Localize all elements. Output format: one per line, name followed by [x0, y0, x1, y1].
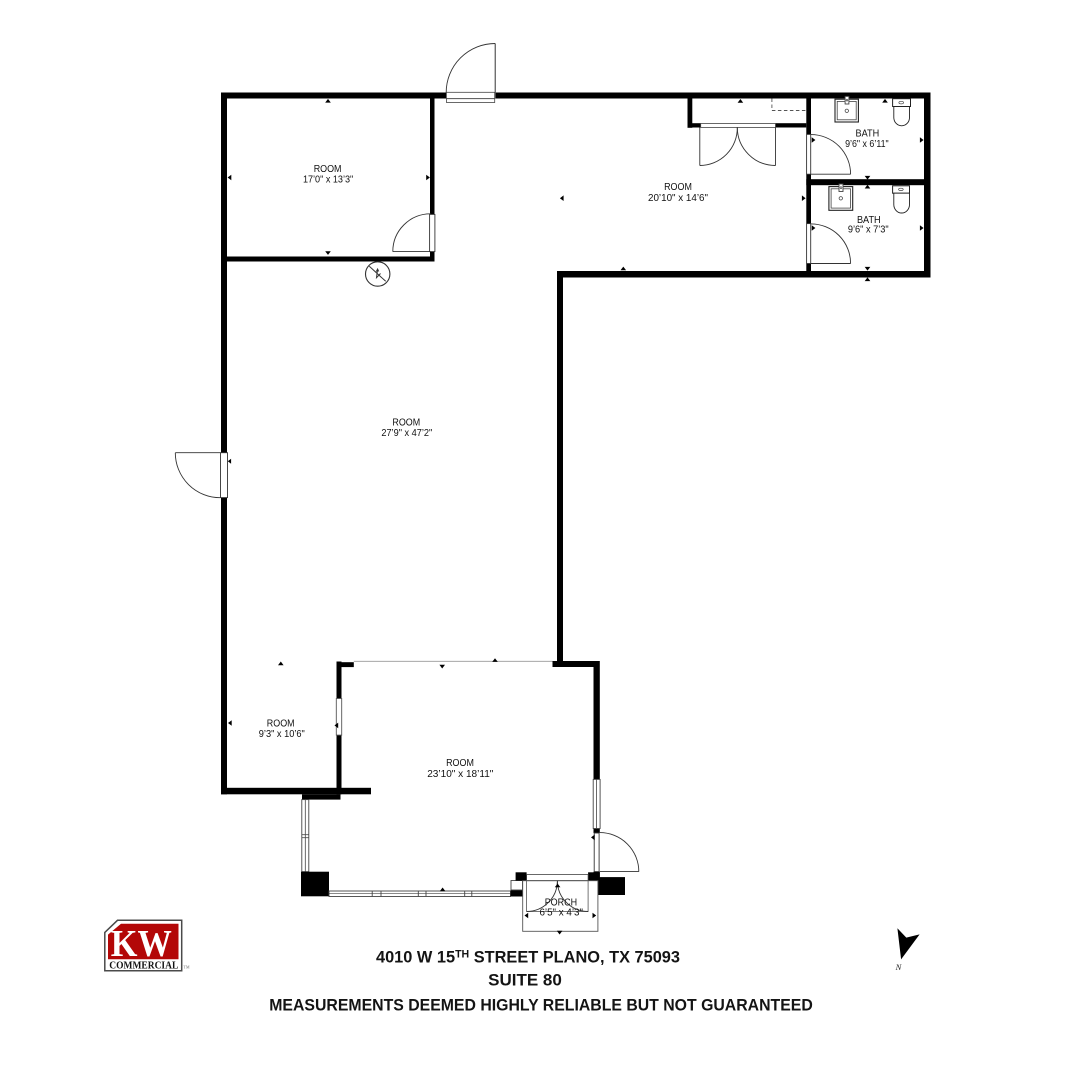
svg-text:ROOM: ROOM	[392, 417, 420, 428]
svg-text:9’3" x 10’6": 9’3" x 10’6"	[259, 729, 305, 740]
svg-text:COMMERCIAL: COMMERCIAL	[109, 960, 178, 971]
svg-text:ROOM: ROOM	[267, 718, 295, 729]
svg-text:4010 W 15TH STREET PLANO, TX 7: 4010 W 15TH STREET PLANO, TX 75093	[376, 948, 680, 967]
svg-text:27’9" x 47’2": 27’9" x 47’2"	[381, 428, 432, 439]
svg-text:ROOM: ROOM	[664, 182, 692, 193]
svg-text:TM: TM	[184, 964, 190, 969]
svg-text:9’6" x 6’11": 9’6" x 6’11"	[845, 139, 889, 150]
svg-text:ROOM: ROOM	[314, 164, 342, 175]
svg-text:BATH: BATH	[856, 129, 880, 140]
svg-text:6’5" x 4’3": 6’5" x 4’3"	[539, 908, 583, 919]
svg-text:20’10" x 14’6": 20’10" x 14’6"	[648, 193, 708, 204]
svg-text:SUITE 80: SUITE 80	[488, 971, 562, 990]
svg-text:MEASUREMENTS DEEMED HIGHLY REL: MEASUREMENTS DEEMED HIGHLY RELIABLE BUT …	[269, 996, 813, 1015]
svg-text:9’6" x 7’3": 9’6" x 7’3"	[848, 224, 889, 235]
svg-text:17’0" x 13’3": 17’0" x 13’3"	[303, 174, 354, 185]
svg-text:ROOM: ROOM	[446, 758, 474, 769]
svg-text:KW: KW	[111, 923, 172, 965]
svg-text:23’10" x 18’11": 23’10" x 18’11"	[427, 769, 494, 780]
